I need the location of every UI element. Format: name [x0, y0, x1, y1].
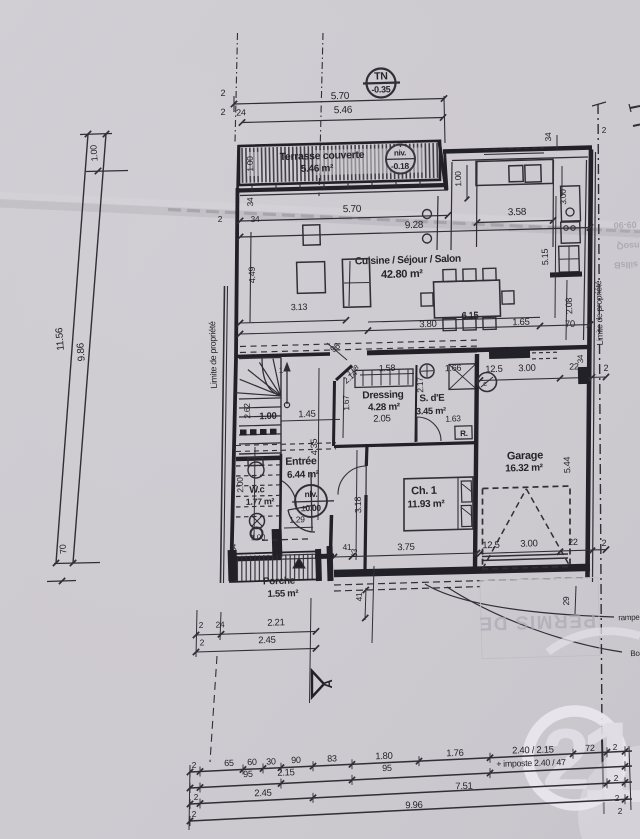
svg-text:PERMIS DE: PERMIS DE — [478, 609, 597, 633]
svg-text:11.93 m²: 11.93 m² — [407, 498, 445, 510]
svg-text:-0.18: -0.18 — [391, 161, 410, 171]
svg-text:12.5: 12.5 — [482, 540, 500, 551]
svg-text:2: 2 — [220, 88, 225, 98]
svg-text:9.86: 9.86 — [75, 342, 87, 362]
svg-text:34: 34 — [250, 214, 260, 224]
svg-text:42.80 m²: 42.80 m² — [381, 268, 424, 281]
svg-text:5.70: 5.70 — [343, 204, 362, 215]
svg-text:1.65: 1.65 — [512, 317, 530, 328]
svg-text:1.63: 1.63 — [445, 413, 461, 423]
svg-text:R.: R. — [460, 429, 468, 438]
svg-text:2.45: 2.45 — [258, 635, 276, 646]
svg-text:5.46: 5.46 — [334, 105, 353, 116]
svg-text:24: 24 — [215, 619, 225, 629]
svg-text:5.44: 5.44 — [562, 457, 572, 474]
svg-text:Garage: Garage — [507, 450, 544, 463]
svg-text:1.00: 1.00 — [453, 171, 463, 187]
svg-text:4.49: 4.49 — [247, 267, 257, 284]
svg-text:2.05: 2.05 — [373, 413, 391, 424]
svg-text:5.15: 5.15 — [540, 249, 550, 266]
svg-text:29: 29 — [561, 596, 571, 606]
svg-text:3.18: 3.18 — [353, 497, 363, 514]
svg-text:9.28: 9.28 — [405, 220, 424, 231]
svg-text:2: 2 — [192, 809, 197, 819]
svg-text:2: 2 — [199, 620, 204, 630]
svg-text:83: 83 — [327, 753, 337, 763]
svg-text:1.76: 1.76 — [446, 748, 464, 759]
svg-text:Bo: Bo — [630, 649, 640, 658]
svg-text:2: 2 — [601, 538, 606, 548]
svg-text:1.00: 1.00 — [251, 533, 266, 542]
svg-text:sillsB: sillsB — [613, 260, 638, 271]
svg-text:2: 2 — [220, 107, 225, 117]
svg-text:Porche: Porche — [263, 576, 296, 588]
svg-text:12.5: 12.5 — [485, 364, 503, 375]
svg-text:2.17: 2.17 — [415, 377, 425, 393]
svg-text:60: 60 — [247, 757, 257, 767]
svg-text:1.45: 1.45 — [298, 409, 316, 420]
svg-text:34: 34 — [543, 132, 553, 142]
svg-text:22: 22 — [568, 537, 578, 547]
svg-text:nlv.: nlv. — [304, 489, 317, 499]
svg-text:1.80: 1.80 — [375, 751, 393, 762]
svg-text:3.45 m²: 3.45 m² — [416, 406, 446, 417]
svg-text:4.35: 4.35 — [309, 439, 319, 456]
svg-text:2: 2 — [614, 773, 619, 783]
svg-text:2: 2 — [613, 742, 618, 752]
svg-text:2.00: 2.00 — [235, 477, 245, 493]
svg-text:2.08: 2.08 — [564, 298, 574, 315]
svg-text:Limite de propriété: Limite de propriété — [207, 321, 219, 389]
svg-text:90: 90 — [291, 755, 301, 765]
svg-text:1.55 m²: 1.55 m² — [267, 588, 298, 600]
svg-text:2.62: 2.62 — [242, 403, 252, 419]
svg-text:30: 30 — [266, 756, 276, 766]
svg-text:2: 2 — [200, 637, 205, 647]
svg-text:6.15: 6.15 — [461, 311, 479, 322]
svg-text:2.45: 2.45 — [254, 788, 272, 799]
svg-text:Terrasse couverte: Terrasse couverte — [279, 149, 364, 163]
svg-text:1.00: 1.00 — [259, 411, 277, 422]
svg-text:nsoQ: nsoQ — [616, 241, 639, 252]
svg-text:95: 95 — [243, 769, 253, 779]
svg-text:+ imposte 2.40 / 47: + imposte 2.40 / 47 — [496, 757, 566, 769]
svg-text:5.70: 5.70 — [331, 91, 350, 102]
svg-text:95: 95 — [382, 763, 392, 773]
svg-text:±0.00: ±0.00 — [301, 503, 322, 514]
svg-text:2.21: 2.21 — [267, 617, 285, 628]
svg-text:5.46 m²: 5.46 m² — [301, 163, 335, 175]
svg-text:3.13: 3.13 — [291, 302, 308, 312]
svg-text:3.00: 3.00 — [518, 363, 536, 374]
svg-text:3.75: 3.75 — [397, 542, 415, 553]
svg-text:09-90: 09-90 — [613, 220, 636, 231]
svg-text:2: 2 — [218, 214, 223, 224]
svg-text:rampe: rampe — [618, 613, 640, 623]
svg-text:3.00: 3.00 — [520, 538, 538, 549]
svg-text:65: 65 — [224, 758, 234, 768]
svg-text:1.77 m²: 1.77 m² — [246, 496, 275, 507]
svg-text:7.51: 7.51 — [455, 781, 473, 792]
svg-text:A: A — [321, 679, 335, 688]
svg-text:3.58: 3.58 — [508, 207, 527, 218]
svg-text:2: 2 — [615, 793, 620, 803]
svg-text:Entrée: Entrée — [285, 455, 317, 468]
svg-text:2: 2 — [194, 792, 199, 802]
svg-text:1.00: 1.00 — [88, 144, 99, 161]
svg-text:34: 34 — [245, 197, 255, 207]
svg-text:3.80: 3.80 — [419, 319, 437, 330]
svg-text:2: 2 — [618, 806, 623, 816]
svg-text:2: 2 — [192, 760, 197, 770]
svg-text:2.40 / 2.15: 2.40 / 2.15 — [512, 744, 554, 756]
svg-text:TN: TN — [374, 70, 388, 82]
svg-text:niv.: niv. — [394, 148, 406, 157]
svg-text:Dressing: Dressing — [362, 389, 404, 401]
svg-text:-0.35: -0.35 — [371, 84, 391, 95]
svg-text:1.58: 1.58 — [379, 363, 396, 373]
svg-text:9.96: 9.96 — [405, 800, 423, 811]
svg-text:Ch. 1: Ch. 1 — [411, 485, 437, 498]
svg-text:1.67: 1.67 — [341, 395, 351, 411]
svg-text:24: 24 — [236, 107, 246, 117]
svg-text:34: 34 — [576, 354, 585, 363]
svg-text:72: 72 — [585, 743, 595, 753]
svg-text:4.28 m²: 4.28 m² — [368, 402, 401, 414]
svg-text:70: 70 — [58, 544, 69, 554]
svg-text:S. d'E: S. d'E — [419, 393, 445, 405]
svg-text:2: 2 — [603, 363, 608, 373]
svg-text:1.00: 1.00 — [245, 156, 255, 172]
svg-text:16.32 m²: 16.32 m² — [505, 462, 544, 474]
svg-text:11.56: 11.56 — [54, 327, 67, 351]
svg-text:3.00: 3.00 — [558, 189, 568, 205]
svg-text:2: 2 — [602, 125, 607, 135]
svg-text:2.15: 2.15 — [277, 767, 295, 778]
svg-text:41: 41 — [354, 592, 364, 602]
svg-text:63: 63 — [350, 548, 359, 557]
svg-text:6.44 m²: 6.44 m² — [287, 469, 320, 481]
